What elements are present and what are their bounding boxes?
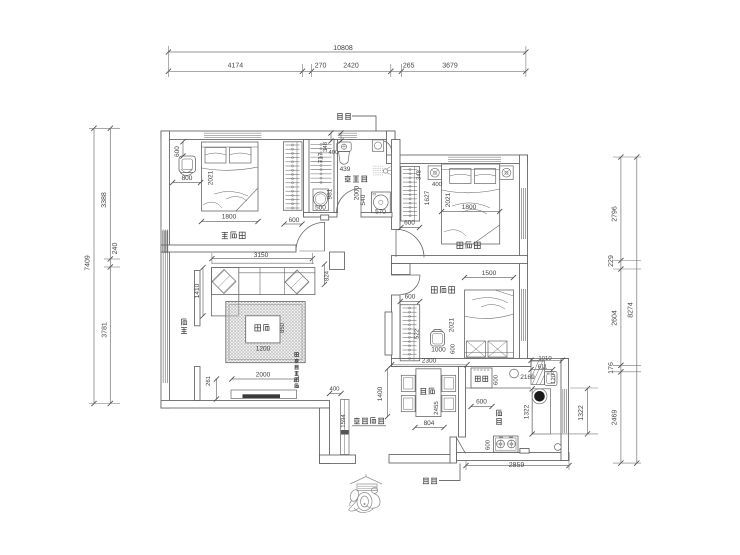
svg-text:1400: 1400 [377, 386, 384, 401]
svg-text:2469: 2469 [612, 410, 619, 426]
svg-text:240: 240 [112, 243, 119, 255]
svg-text:1500: 1500 [482, 270, 497, 277]
svg-text:600: 600 [174, 146, 181, 157]
svg-text:400: 400 [328, 149, 339, 156]
svg-text:600: 600 [493, 374, 500, 385]
svg-text:1627: 1627 [424, 190, 431, 205]
svg-text:600: 600 [485, 439, 492, 450]
svg-text:600: 600 [289, 217, 300, 224]
svg-text:1322: 1322 [523, 404, 530, 419]
svg-text:3150: 3150 [254, 252, 269, 259]
svg-text:1594: 1594 [340, 414, 347, 428]
svg-text:570: 570 [375, 209, 386, 216]
svg-text:3388: 3388 [101, 192, 108, 208]
svg-text:2300: 2300 [422, 357, 437, 364]
svg-text:824: 824 [324, 270, 331, 281]
svg-text:600: 600 [405, 294, 416, 301]
svg-text:3679: 3679 [442, 62, 458, 69]
svg-text:981: 981 [327, 188, 334, 199]
svg-text:120: 120 [550, 373, 557, 384]
svg-text:7409: 7409 [85, 255, 92, 271]
svg-text:4174: 4174 [228, 62, 244, 69]
svg-text:600: 600 [476, 399, 487, 406]
svg-text:850: 850 [279, 322, 286, 333]
svg-text:2021: 2021 [449, 317, 456, 332]
svg-text:2000: 2000 [354, 185, 361, 200]
svg-text:1800: 1800 [222, 214, 237, 221]
svg-text:10808: 10808 [333, 45, 353, 52]
svg-text:2420: 2420 [343, 62, 359, 69]
svg-text:2000: 2000 [256, 372, 271, 379]
svg-text:2169: 2169 [520, 374, 535, 381]
svg-text:540: 540 [360, 194, 367, 205]
svg-text:800: 800 [182, 175, 193, 182]
svg-text:2604: 2604 [612, 310, 619, 326]
svg-text:600: 600 [404, 220, 415, 227]
svg-text:522: 522 [414, 328, 421, 339]
svg-text:1322: 1322 [578, 405, 585, 421]
svg-text:500: 500 [315, 205, 326, 212]
svg-text:261: 261 [205, 375, 212, 386]
svg-text:2021: 2021 [208, 170, 215, 185]
svg-text:1800: 1800 [462, 204, 477, 211]
svg-text:804: 804 [424, 420, 435, 427]
svg-text:2021: 2021 [445, 192, 452, 207]
svg-text:348: 348 [416, 169, 423, 180]
svg-text:439: 439 [340, 166, 351, 173]
svg-text:717: 717 [318, 152, 325, 163]
svg-text:1000: 1000 [431, 347, 446, 354]
svg-text:2455: 2455 [433, 401, 440, 415]
svg-text:600: 600 [450, 343, 457, 354]
svg-text:229: 229 [608, 255, 615, 267]
svg-text:1010: 1010 [538, 355, 552, 362]
svg-text:2796: 2796 [612, 206, 619, 222]
svg-text:270: 270 [315, 62, 327, 69]
svg-text:2859: 2859 [509, 462, 525, 469]
svg-text:265: 265 [403, 62, 415, 69]
svg-text:8274: 8274 [628, 302, 635, 318]
svg-text:1200: 1200 [256, 346, 271, 353]
svg-text:1410: 1410 [194, 283, 201, 298]
svg-text:3781: 3781 [102, 322, 109, 338]
svg-text:400: 400 [432, 181, 443, 188]
